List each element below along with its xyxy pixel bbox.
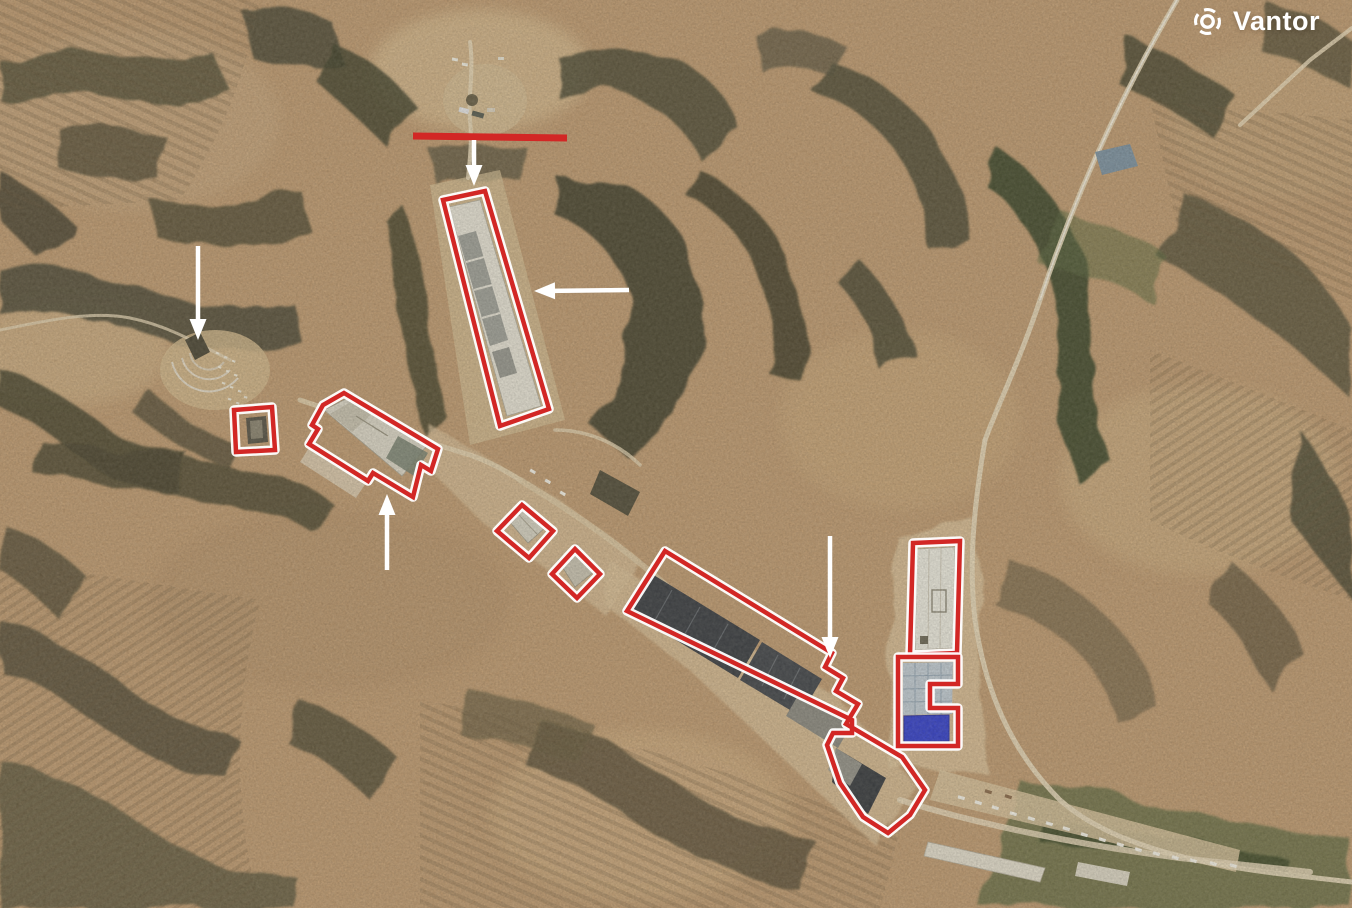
satellite-image: Vantor <box>0 0 1352 908</box>
terrain-imagery <box>0 0 1352 908</box>
vantor-logo-text: Vantor <box>1233 8 1320 35</box>
grain-light <box>0 0 1352 908</box>
vantor-logo: Vantor <box>1191 5 1320 38</box>
vantor-aperture-icon <box>1191 5 1224 38</box>
